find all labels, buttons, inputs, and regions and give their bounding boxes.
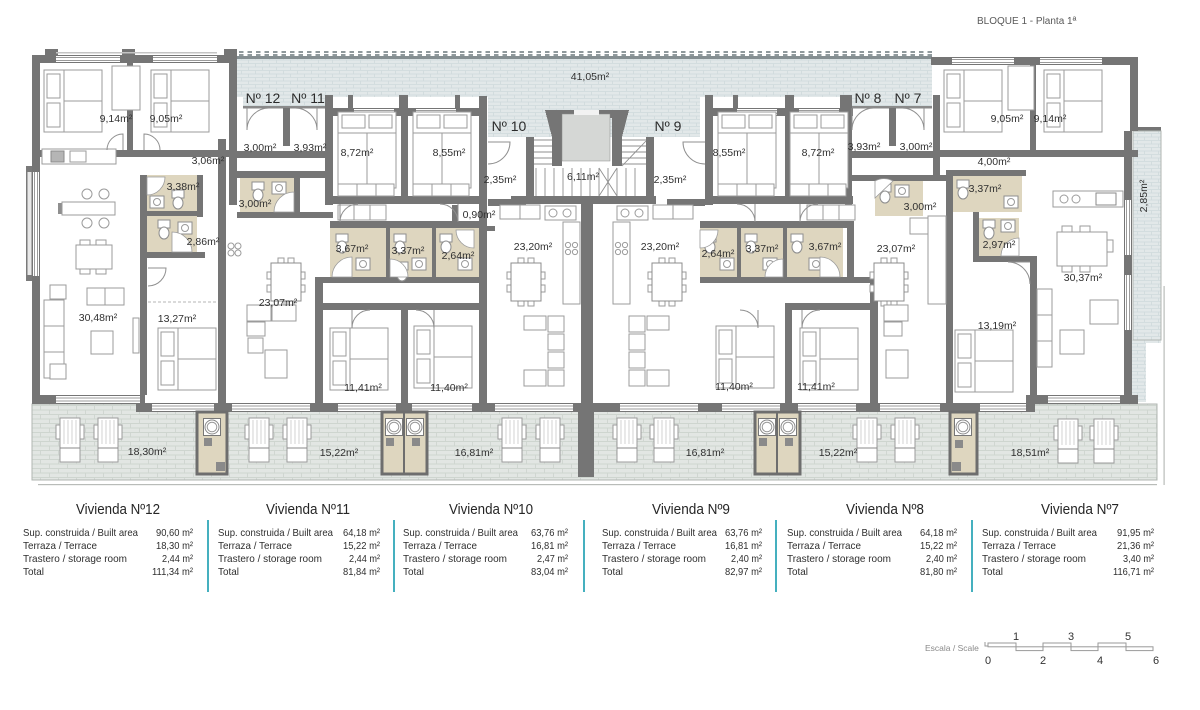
svg-text:8,72m²: 8,72m² (802, 147, 835, 159)
svg-text:Terraza / Terrace: Terraza / Terrace (602, 540, 676, 552)
svg-text:3,00m²: 3,00m² (904, 201, 937, 213)
svg-text:9,05m²: 9,05m² (150, 113, 183, 125)
svg-text:8,55m²: 8,55m² (433, 147, 466, 159)
svg-text:Vivienda Nº8: Vivienda Nº8 (846, 502, 924, 518)
svg-text:Trastero / storage room: Trastero / storage room (982, 553, 1086, 565)
svg-text:2,85m²: 2,85m² (1138, 179, 1150, 212)
svg-text:Terraza / Terrace: Terraza / Terrace (787, 540, 861, 552)
svg-text:16,81 m²: 16,81 m² (531, 540, 568, 552)
svg-text:81,84 m²: 81,84 m² (343, 566, 380, 578)
svg-text:9,05m²: 9,05m² (991, 113, 1024, 125)
svg-text:4,00m²: 4,00m² (978, 156, 1011, 168)
svg-text:83,04 m²: 83,04 m² (531, 566, 568, 578)
svg-text:Nº 7: Nº 7 (895, 90, 922, 106)
svg-text:18,51m²: 18,51m² (1011, 447, 1050, 459)
svg-text:2,97m²: 2,97m² (983, 239, 1016, 251)
svg-text:Terraza / Terrace: Terraza / Terrace (982, 540, 1056, 552)
svg-text:Terraza / Terrace: Terraza / Terrace (218, 540, 292, 552)
svg-text:Total: Total (787, 566, 808, 578)
svg-text:Total: Total (23, 566, 44, 578)
svg-text:Escala / Scale: Escala / Scale (925, 643, 979, 653)
svg-text:9,14m²: 9,14m² (100, 113, 133, 125)
svg-text:9,14m²: 9,14m² (1034, 113, 1067, 125)
svg-text:Nº 12: Nº 12 (246, 90, 281, 106)
svg-text:30,48m²: 30,48m² (79, 312, 118, 324)
svg-text:18,30m²: 18,30m² (128, 446, 167, 458)
svg-text:13,19m²: 13,19m² (978, 320, 1017, 332)
svg-text:16,81m²: 16,81m² (455, 447, 494, 459)
svg-text:3,37m²: 3,37m² (746, 243, 779, 255)
svg-text:Nº 8: Nº 8 (855, 90, 882, 106)
svg-text:15,22 m²: 15,22 m² (343, 540, 380, 552)
svg-text:Nº 9: Nº 9 (655, 118, 682, 134)
svg-text:3,93m²: 3,93m² (848, 141, 881, 153)
svg-text:Sup. construida / Built area: Sup. construida / Built area (23, 527, 138, 539)
svg-text:6: 6 (1153, 655, 1159, 667)
svg-text:Vivienda Nº7: Vivienda Nº7 (1041, 502, 1119, 518)
svg-text:Sup. construida / Built area: Sup. construida / Built area (403, 527, 518, 539)
svg-text:Sup. construida / Built area: Sup. construida / Built area (218, 527, 333, 539)
svg-text:2,47 m²: 2,47 m² (537, 553, 568, 565)
svg-text:64,18 m²: 64,18 m² (920, 527, 957, 539)
svg-text:Nº 10: Nº 10 (492, 118, 527, 134)
svg-text:64,18 m²: 64,18 m² (343, 527, 380, 539)
svg-text:Sup. construida / Built area: Sup. construida / Built area (787, 527, 902, 539)
svg-text:111,34 m²: 111,34 m² (152, 566, 193, 578)
svg-text:2,40 m²: 2,40 m² (731, 553, 762, 565)
svg-text:Trastero / storage room: Trastero / storage room (23, 553, 127, 565)
svg-text:3,37m²: 3,37m² (969, 183, 1002, 195)
svg-text:2,35m²: 2,35m² (654, 174, 687, 186)
svg-text:3,67m²: 3,67m² (809, 241, 842, 253)
svg-text:16,81 m²: 16,81 m² (725, 540, 762, 552)
svg-text:16,81m²: 16,81m² (686, 447, 725, 459)
svg-text:BLOQUE 1 - Planta 1ª: BLOQUE 1 - Planta 1ª (977, 16, 1077, 27)
svg-text:15,22m²: 15,22m² (320, 447, 359, 459)
svg-text:Sup. construida / Built area: Sup. construida / Built area (602, 527, 717, 539)
svg-text:11,40m²: 11,40m² (430, 382, 468, 394)
svg-text:Vivienda Nº11: Vivienda Nº11 (266, 502, 350, 518)
svg-text:3,00m²: 3,00m² (239, 198, 272, 210)
svg-text:1: 1 (1013, 631, 1019, 643)
svg-text:Sup. construida / Built area: Sup. construida / Built area (982, 527, 1097, 539)
svg-text:3,67m²: 3,67m² (336, 243, 369, 255)
svg-text:3,00m²: 3,00m² (244, 142, 277, 154)
svg-text:0: 0 (985, 655, 991, 667)
svg-text:11,41m²: 11,41m² (344, 382, 382, 394)
svg-text:81,80 m²: 81,80 m² (920, 566, 957, 578)
svg-text:Total: Total (218, 566, 239, 578)
svg-text:3,06m²: 3,06m² (192, 155, 225, 167)
svg-text:2,44 m²: 2,44 m² (349, 553, 380, 565)
svg-text:Vivienda Nº9: Vivienda Nº9 (652, 502, 730, 518)
svg-text:3,38m²: 3,38m² (167, 181, 200, 193)
svg-text:2: 2 (1040, 655, 1046, 667)
svg-text:2,35m²: 2,35m² (484, 174, 517, 186)
svg-text:23,20m²: 23,20m² (641, 241, 680, 253)
svg-text:116,71 m²: 116,71 m² (1113, 566, 1154, 578)
svg-text:91,95 m²: 91,95 m² (1117, 527, 1154, 539)
svg-text:41,05m²: 41,05m² (571, 71, 610, 83)
svg-text:5: 5 (1125, 631, 1131, 643)
svg-text:2,40 m²: 2,40 m² (926, 553, 957, 565)
svg-text:Trastero / storage room: Trastero / storage room (218, 553, 322, 565)
svg-text:13,27m²: 13,27m² (158, 313, 197, 325)
svg-text:63,76 m²: 63,76 m² (531, 527, 568, 539)
svg-text:8,55m²: 8,55m² (713, 147, 746, 159)
svg-text:23,20m²: 23,20m² (514, 241, 553, 253)
svg-text:11,40m²: 11,40m² (715, 381, 753, 393)
svg-text:3: 3 (1068, 631, 1074, 643)
svg-text:4: 4 (1097, 655, 1103, 667)
svg-text:3,37m²: 3,37m² (392, 245, 425, 257)
svg-text:15,22m²: 15,22m² (819, 447, 858, 459)
svg-text:2,44 m²: 2,44 m² (162, 553, 193, 565)
svg-text:18,30 m²: 18,30 m² (156, 540, 193, 552)
svg-text:63,76 m²: 63,76 m² (725, 527, 762, 539)
svg-text:3,00m²: 3,00m² (900, 141, 933, 153)
svg-text:Vivienda Nº12: Vivienda Nº12 (76, 502, 160, 518)
svg-text:Trastero / storage room: Trastero / storage room (602, 553, 706, 565)
svg-text:23,07m²: 23,07m² (259, 297, 298, 309)
svg-text:15,22 m²: 15,22 m² (920, 540, 957, 552)
svg-text:Trastero / storage room: Trastero / storage room (403, 553, 507, 565)
svg-text:Vivienda Nº10: Vivienda Nº10 (449, 502, 533, 518)
svg-text:2,64m²: 2,64m² (442, 250, 475, 262)
svg-text:Total: Total (982, 566, 1003, 578)
svg-text:11,41m²: 11,41m² (797, 381, 835, 393)
svg-text:Terraza / Terrace: Terraza / Terrace (23, 540, 97, 552)
svg-text:82,97 m²: 82,97 m² (725, 566, 762, 578)
svg-text:6,11m²: 6,11m² (567, 171, 599, 183)
svg-text:21,36 m²: 21,36 m² (1117, 540, 1154, 552)
svg-text:3,93m²: 3,93m² (294, 142, 327, 154)
svg-text:30,37m²: 30,37m² (1064, 272, 1103, 284)
svg-text:2,86m²: 2,86m² (187, 236, 220, 248)
svg-text:Nº 11: Nº 11 (291, 90, 325, 106)
svg-text:Total: Total (602, 566, 623, 578)
svg-text:0,90m²: 0,90m² (463, 209, 496, 221)
svg-text:90,60 m²: 90,60 m² (156, 527, 193, 539)
svg-text:23,07m²: 23,07m² (877, 243, 916, 255)
svg-text:3,40 m²: 3,40 m² (1123, 553, 1154, 565)
svg-text:8,72m²: 8,72m² (341, 147, 374, 159)
svg-text:Terraza / Terrace: Terraza / Terrace (403, 540, 477, 552)
svg-text:Trastero / storage room: Trastero / storage room (787, 553, 891, 565)
svg-text:Total: Total (403, 566, 424, 578)
svg-text:2,64m²: 2,64m² (702, 248, 735, 260)
